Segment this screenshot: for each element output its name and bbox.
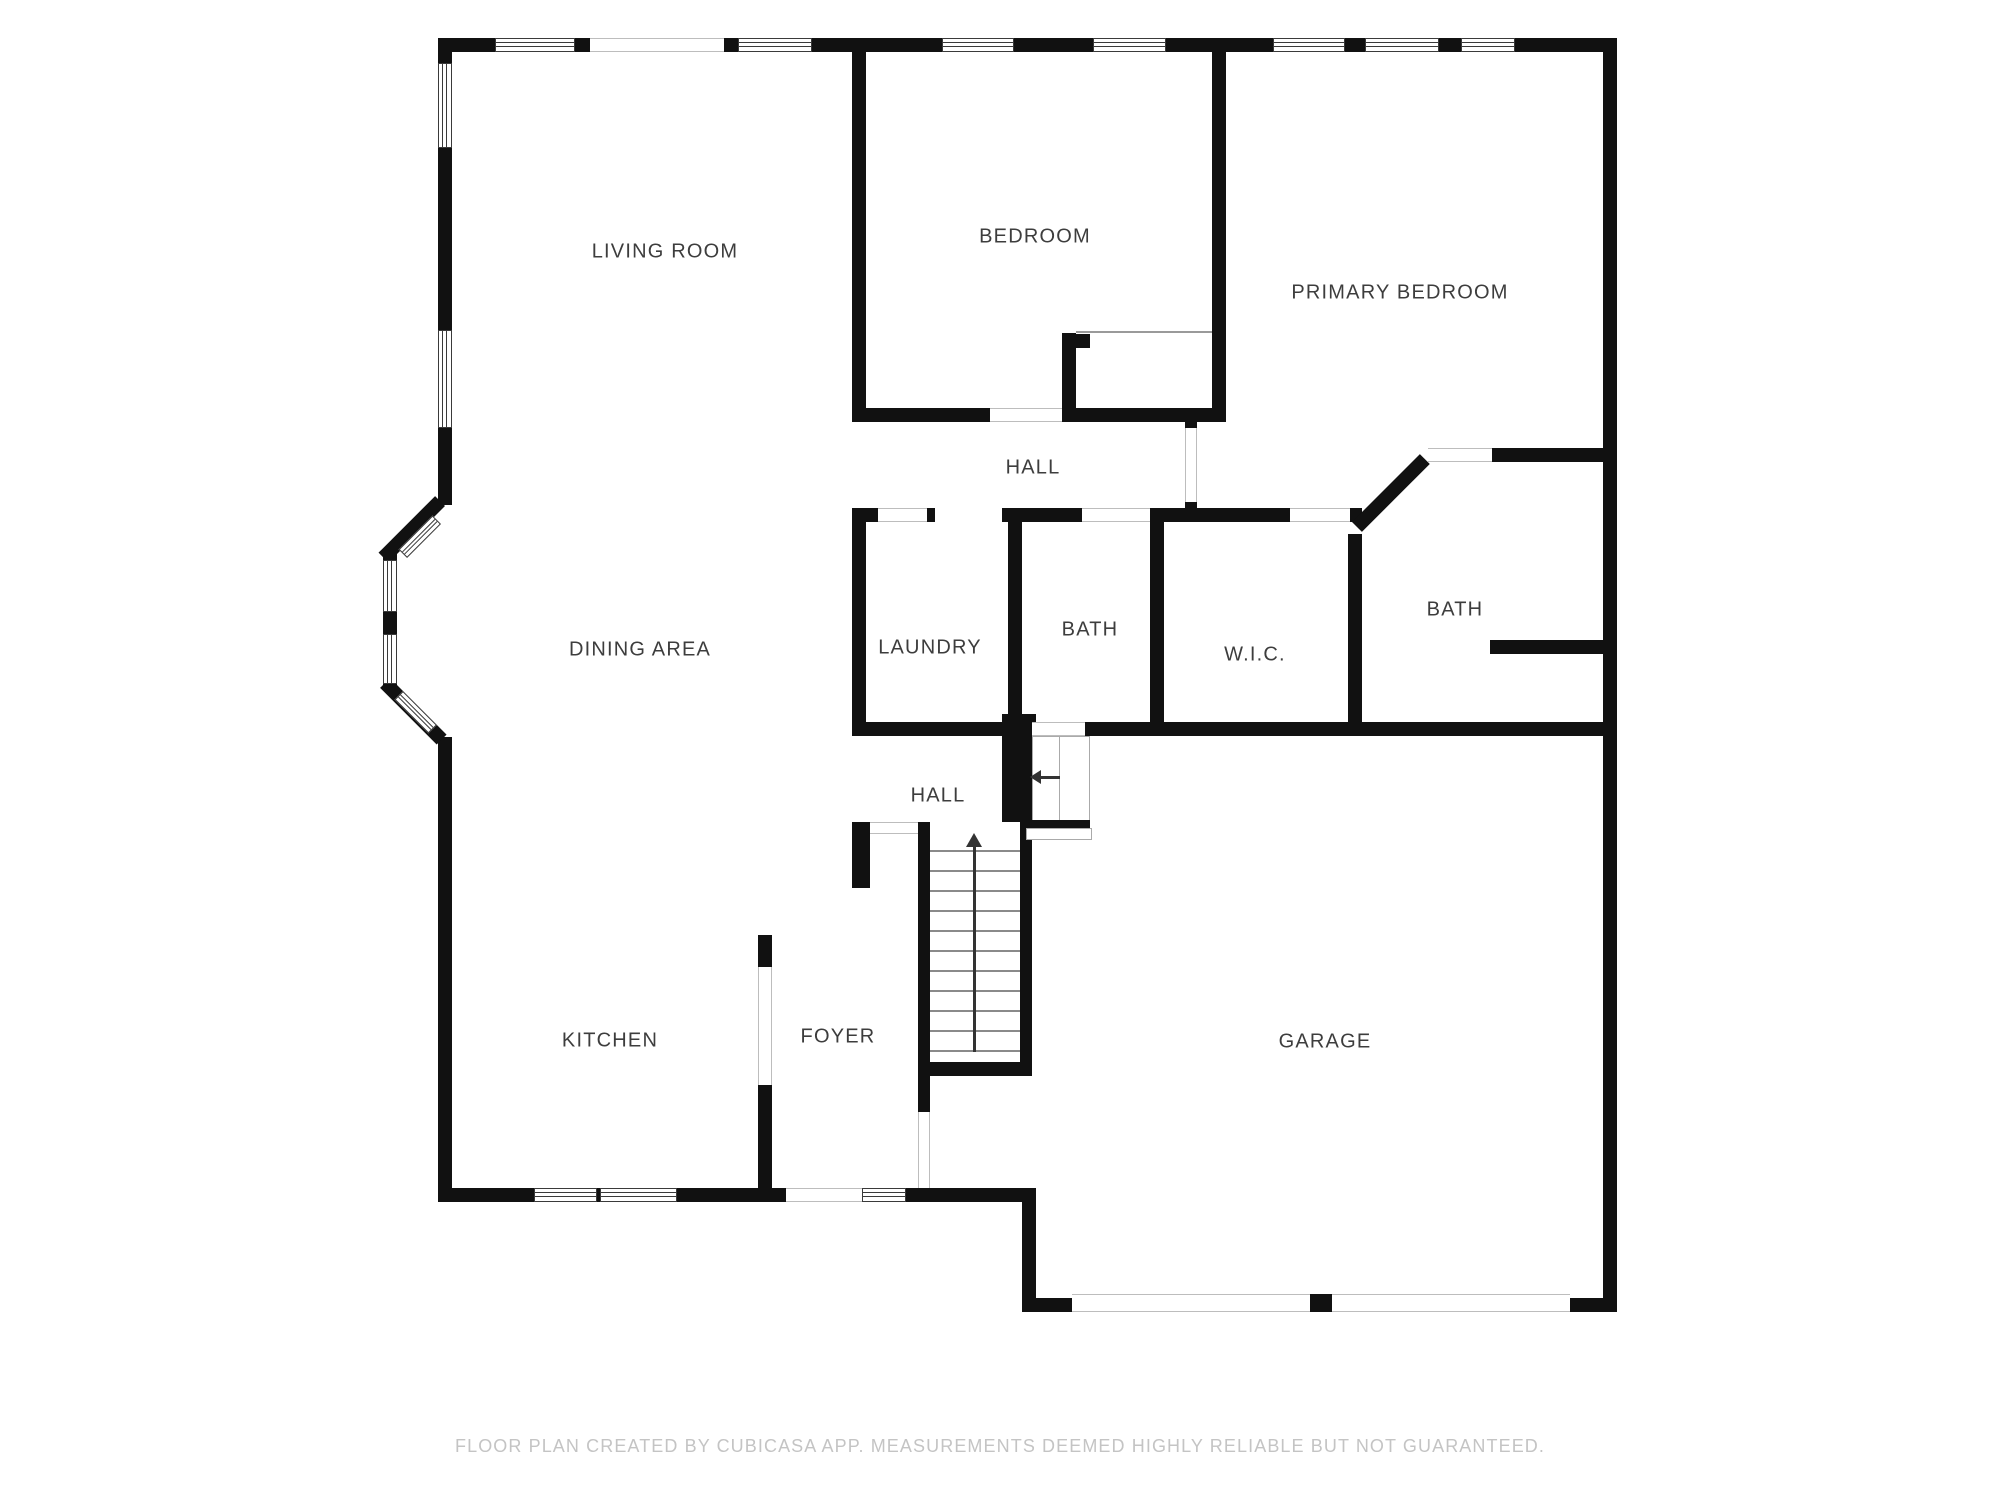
wall-below-stairs — [918, 1076, 930, 1112]
window — [438, 330, 452, 428]
wall-bath-left — [1008, 508, 1022, 736]
door-jamb — [1185, 422, 1197, 428]
wic-door-opening — [1290, 508, 1350, 522]
room-label-bedroom: BEDROOM — [979, 226, 1091, 249]
wall-stairs-left — [918, 822, 930, 1075]
wall-garage-bottom-left — [1022, 1298, 1072, 1312]
wall-hall-stub — [852, 822, 870, 888]
bay-window — [383, 634, 397, 684]
window — [738, 38, 812, 52]
wall-bath-right-divider — [1490, 640, 1603, 654]
wall-opening — [590, 38, 724, 52]
room-label-living-room: LIVING ROOM — [592, 241, 739, 264]
wall-row-top-d — [1150, 508, 1290, 522]
window — [534, 1188, 597, 1202]
wall-left-lower-exterior — [438, 737, 452, 1202]
window — [942, 38, 1014, 52]
window — [1365, 38, 1439, 52]
wall-closet-step — [1076, 334, 1090, 348]
room-label-bath-right: BATH — [1427, 599, 1484, 622]
window — [1461, 38, 1515, 52]
bedroom-door-opening — [990, 408, 1062, 422]
stairs-top-opening — [1032, 722, 1085, 736]
wall-bedroom-bottom-right — [1062, 408, 1226, 422]
wall-bath-right — [1150, 508, 1164, 736]
room-label-bath-middle: BATH — [1062, 619, 1119, 642]
laundry-door-opening — [878, 508, 927, 522]
door-jamb — [1185, 502, 1197, 508]
wall-primary-bottom — [1492, 448, 1603, 462]
window — [1273, 38, 1345, 52]
room-label-primary-bedroom: PRIMARY BEDROOM — [1291, 282, 1508, 305]
room-label-garage: GARAGE — [1279, 1031, 1372, 1054]
wall-stairs-bottom — [918, 1062, 1032, 1076]
wall-garage-bottom-right — [1570, 1298, 1617, 1312]
wall-garage-left — [1022, 1188, 1036, 1312]
room-label-hall-lower: HALL — [911, 785, 966, 808]
room-label-laundry: LAUNDRY — [878, 637, 982, 660]
room-label-dining-area: DINING AREA — [569, 639, 711, 662]
stairs-up-arrow-head-icon — [966, 833, 982, 847]
kitchen-foyer-opening — [758, 967, 772, 1085]
window — [438, 63, 452, 148]
wall-foyer-left-upper — [758, 935, 772, 967]
wall-laundry-left — [852, 508, 866, 736]
wall-stairs-right — [1020, 822, 1032, 1075]
room-label-hall-upper: HALL — [1006, 457, 1061, 480]
hall-door-opening — [870, 822, 918, 834]
wall-foyer-left-lower — [758, 1085, 772, 1202]
room-label-wic: W.I.C. — [1224, 644, 1286, 667]
wall-wic-right — [1348, 534, 1362, 736]
wall-row-bottom-left — [852, 722, 1032, 736]
stairs-left-arrow-icon — [1040, 776, 1060, 779]
stairs-up-arrow-icon — [973, 846, 976, 1052]
window — [600, 1188, 677, 1202]
wall-bedroom-right — [1212, 52, 1226, 422]
primary-bedroom-door-opening — [1185, 422, 1197, 508]
under-stairs-door-opening — [918, 1112, 930, 1188]
wall-closet-left — [1062, 333, 1076, 408]
wall-right-exterior — [1603, 38, 1617, 1312]
wall-bedroom-bottom-left — [852, 408, 990, 422]
garage-door-center-post — [1310, 1294, 1332, 1312]
stairs-landing-edge — [1032, 820, 1090, 828]
room-label-kitchen: KITCHEN — [562, 1030, 658, 1053]
bay-window — [383, 560, 397, 612]
stairs-landing-tread — [1026, 828, 1092, 840]
floor-plan: LIVING ROOM BEDROOM PRIMARY BEDROOM HALL… — [0, 0, 2000, 1500]
front-door-opening — [786, 1188, 862, 1202]
stairs-landing-divider — [1059, 737, 1060, 821]
wall-row-bottom-right — [1085, 722, 1603, 736]
bath-door-opening — [1082, 508, 1150, 522]
closet-top-line — [1076, 331, 1212, 333]
window — [862, 1188, 906, 1202]
bath-right-door-opening — [1428, 448, 1492, 462]
wall-bedroom-left — [852, 52, 866, 422]
window — [495, 38, 575, 52]
room-label-foyer: FOYER — [801, 1026, 876, 1049]
stairs-left-arrow-head-icon — [1030, 770, 1041, 784]
wall-bottom-exterior — [438, 1188, 1036, 1202]
window — [1093, 38, 1166, 52]
footer-disclaimer: FLOOR PLAN CREATED BY CUBICASA APP. MEAS… — [0, 1436, 2000, 1457]
wall-diagonal-primary — [1352, 454, 1430, 532]
bay-window-diagonal — [395, 691, 437, 733]
wall-row-top-b — [927, 508, 935, 522]
